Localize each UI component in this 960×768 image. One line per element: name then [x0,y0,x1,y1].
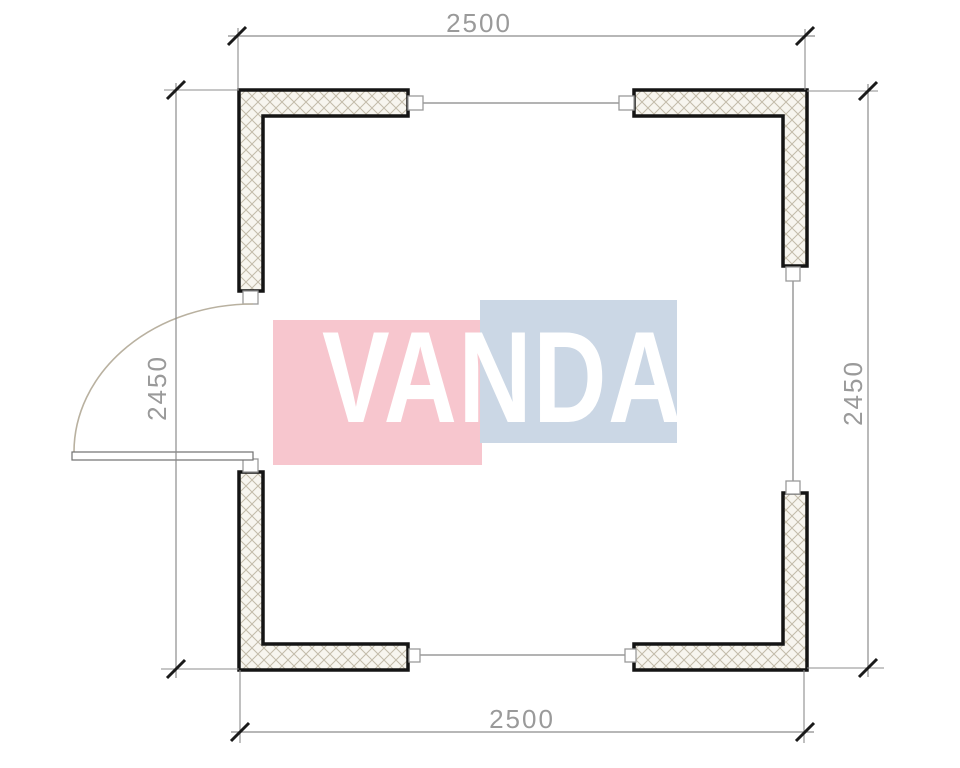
dimension-label-top: 2500 [379,8,579,39]
wall-bottom-right [634,493,807,670]
dimension-label-left: 2450 [145,288,169,488]
dimension-label-right: 2450 [841,293,865,493]
wall-bottom-left [239,472,408,670]
window-end-marker [408,96,423,110]
walls [239,90,807,670]
floor-plan-canvas: VANDA [0,0,960,768]
windows [420,103,793,655]
window-end-marker [619,96,634,110]
window-end-marker [625,649,636,662]
window-end-marker [786,481,800,494]
frame-markers [243,96,800,662]
dimension-lines [176,36,868,732]
window-end-marker [786,267,800,281]
dimension-ticks [167,27,877,741]
wall-top-left [239,90,408,291]
door-frame-marker [243,291,258,304]
door-frame-marker [243,459,258,472]
window-end-marker [409,649,420,662]
extension-lines [161,28,884,743]
dimension-label-bottom: 2500 [422,704,622,735]
wall-top-right [634,90,807,266]
